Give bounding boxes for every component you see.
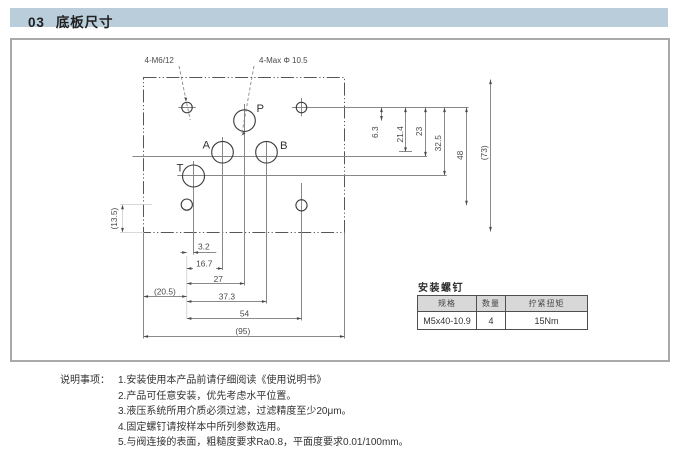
svg-text:32.5: 32.5: [433, 135, 443, 152]
svg-text:21.4: 21.4: [395, 126, 405, 143]
svg-text:T: T: [177, 163, 184, 175]
svg-text:6.3: 6.3: [370, 126, 380, 138]
svg-text:(73): (73): [479, 145, 489, 160]
svg-text:4-Max Φ 10.5: 4-Max Φ 10.5: [259, 56, 308, 65]
svg-text:48: 48: [455, 150, 465, 160]
svg-text:16.7: 16.7: [196, 258, 213, 268]
svg-text:3.2: 3.2: [198, 242, 210, 252]
svg-text:A: A: [203, 140, 211, 152]
svg-text:54: 54: [240, 309, 250, 319]
svg-text:(95): (95): [235, 326, 250, 336]
svg-text:P: P: [257, 103, 265, 115]
svg-text:37.3: 37.3: [219, 291, 236, 301]
svg-text:27: 27: [214, 274, 224, 284]
svg-text:4-M6/12: 4-M6/12: [145, 56, 175, 65]
svg-text:23: 23: [414, 126, 424, 136]
svg-text:(20.5): (20.5): [154, 287, 176, 297]
svg-text:B: B: [280, 140, 288, 152]
svg-text:(13.5): (13.5): [109, 207, 119, 229]
